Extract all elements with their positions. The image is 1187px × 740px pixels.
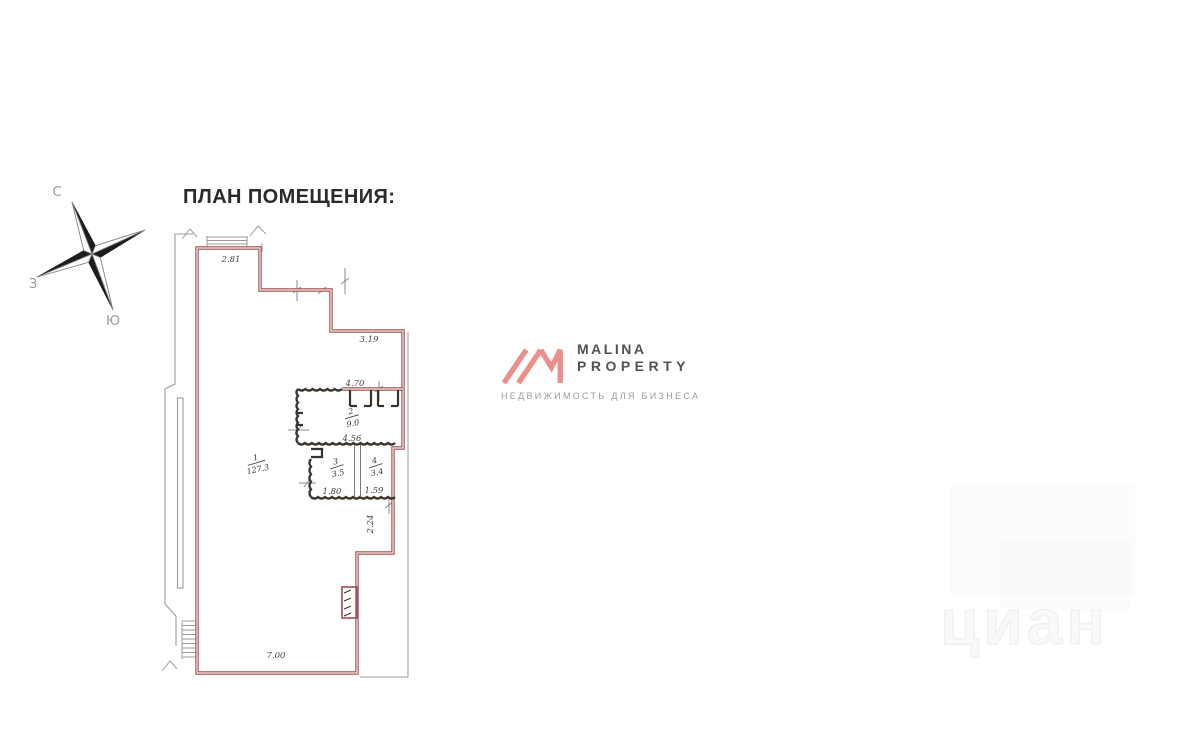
logo-tagline: НЕДВИЖИМОСТЬ ДЛЯ БИЗНЕСА: [501, 391, 701, 401]
svg-text:2: 2: [347, 407, 355, 417]
page-title: ПЛАН ПОМЕЩЕНИЯ:: [183, 186, 395, 209]
svg-text:1: 1: [252, 453, 259, 463]
malina-m-mark-icon: [501, 341, 567, 386]
malina-property-logo: MALINA PROPERTY НЕДВИЖИМОСТЬ ДЛЯ БИЗНЕСА: [501, 341, 701, 401]
dim-storeroom-right: 1.59: [365, 486, 385, 496]
dim-bottom-wall: 7.00: [267, 651, 287, 661]
compass-west-label: З: [29, 277, 37, 292]
storeroom-divider: [355, 445, 361, 497]
room-1-label: 1 127.3: [243, 451, 270, 476]
svg-text:3: 3: [332, 457, 339, 467]
dim-corridor-wall: 4.70: [345, 379, 366, 389]
compass-north-label: С: [52, 185, 61, 200]
dimension-labels: 2.81 3.19 4.70 4.56 1.80 1.59 2.24 7.00: [221, 255, 385, 661]
svg-text:4: 4: [370, 456, 378, 466]
dim-right-wall: 2.24: [366, 515, 376, 535]
dim-upper-step-wall: 3.19: [360, 335, 380, 345]
svg-text:9.0: 9.0: [346, 418, 360, 429]
window-hatch-bottom-left: [162, 621, 196, 671]
room-2-label: 2 9.0: [343, 406, 360, 429]
balcony-strip: [165, 234, 193, 646]
logo-name-line2: PROPERTY: [577, 358, 690, 375]
cian-watermark: циан: [940, 585, 1109, 659]
floor-plan-page: ПЛАН ПОМЕЩЕНИЯ: С З Ю: [0, 0, 1187, 740]
svg-text:3.4: 3.4: [370, 467, 384, 478]
dim-inner-wall: 4.56: [342, 434, 363, 444]
dim-top-wall: 2.81: [221, 255, 241, 265]
room-4-label: 4 3.4: [367, 455, 385, 478]
compass-rose-icon: С З Ю: [29, 185, 145, 329]
ventilation-shaft: [342, 587, 357, 618]
compass-south-label: Ю: [106, 314, 120, 329]
room-3-label: 3 3.5: [328, 456, 346, 479]
logo-name-line1: MALINA: [577, 341, 690, 358]
dim-storeroom-left: 1.80: [323, 487, 343, 497]
svg-text:3.5: 3.5: [331, 468, 345, 479]
extension-lines: [360, 332, 408, 677]
